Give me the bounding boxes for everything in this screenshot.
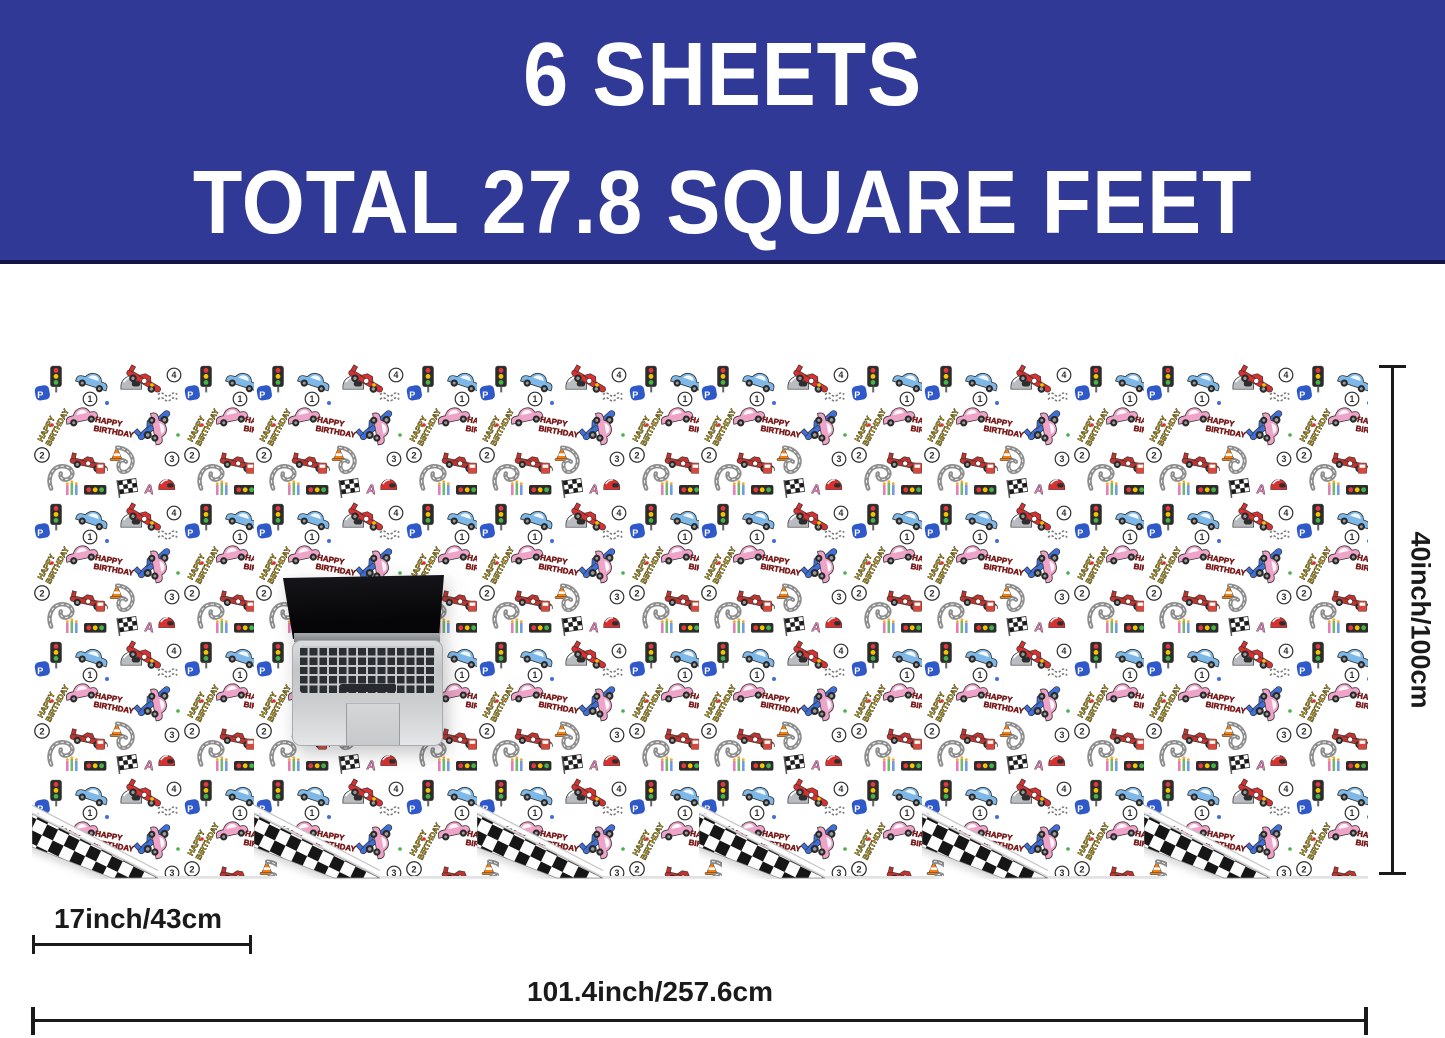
laptop-spacebar [340, 684, 396, 692]
height-dim-cap-bottom [1379, 872, 1406, 875]
laptop-screen [281, 575, 445, 639]
product-infographic: 1 2 3 4 HAPPY BIRTHDAY HAPPY BIRTHDAY [0, 0, 1445, 1038]
height-dim-label: 40inch/100cm [1405, 531, 1436, 708]
header-banner: 6 SHEETS TOTAL 27.8 SQUARE FEET [0, 0, 1445, 264]
banner-line2: TOTAL 27.8 SQUARE FEET [193, 158, 1253, 248]
sheet-width-dim-cap-left [32, 935, 35, 954]
wrapping-paper-sheet-6 [1144, 363, 1368, 879]
height-dim-cap-top [1379, 365, 1406, 368]
wrapping-paper-sheet-5 [922, 363, 1167, 879]
total-width-dim-label: 101.4inch/257.6cm [460, 976, 840, 1008]
sheet-width-dim-line [32, 943, 252, 946]
sheet-front [699, 363, 944, 876]
sheet-width-dim-cap-right [249, 935, 252, 954]
wrapping-paper-sheet-1 [32, 363, 277, 879]
sheet-width-dim-label: 17inch/43cm [32, 903, 244, 935]
sheet-front [477, 363, 722, 876]
total-width-dim-line [32, 1019, 1368, 1022]
total-width-dim-cap-right [1364, 1007, 1368, 1035]
sheet-front [1144, 363, 1368, 876]
sheet-front [32, 363, 277, 876]
sheet-front [922, 363, 1167, 876]
wrapping-paper-sheet-4 [699, 363, 944, 879]
height-dim-line [1391, 367, 1394, 874]
banner-line1: 6 SHEETS [523, 30, 922, 120]
laptop-deck [292, 640, 443, 746]
total-width-dim-cap-left [31, 1007, 35, 1035]
laptop-trackpad [346, 703, 400, 745]
laptop [281, 575, 445, 747]
laptop-keyboard [300, 646, 435, 693]
wrapping-paper-sheet-3 [477, 363, 722, 879]
